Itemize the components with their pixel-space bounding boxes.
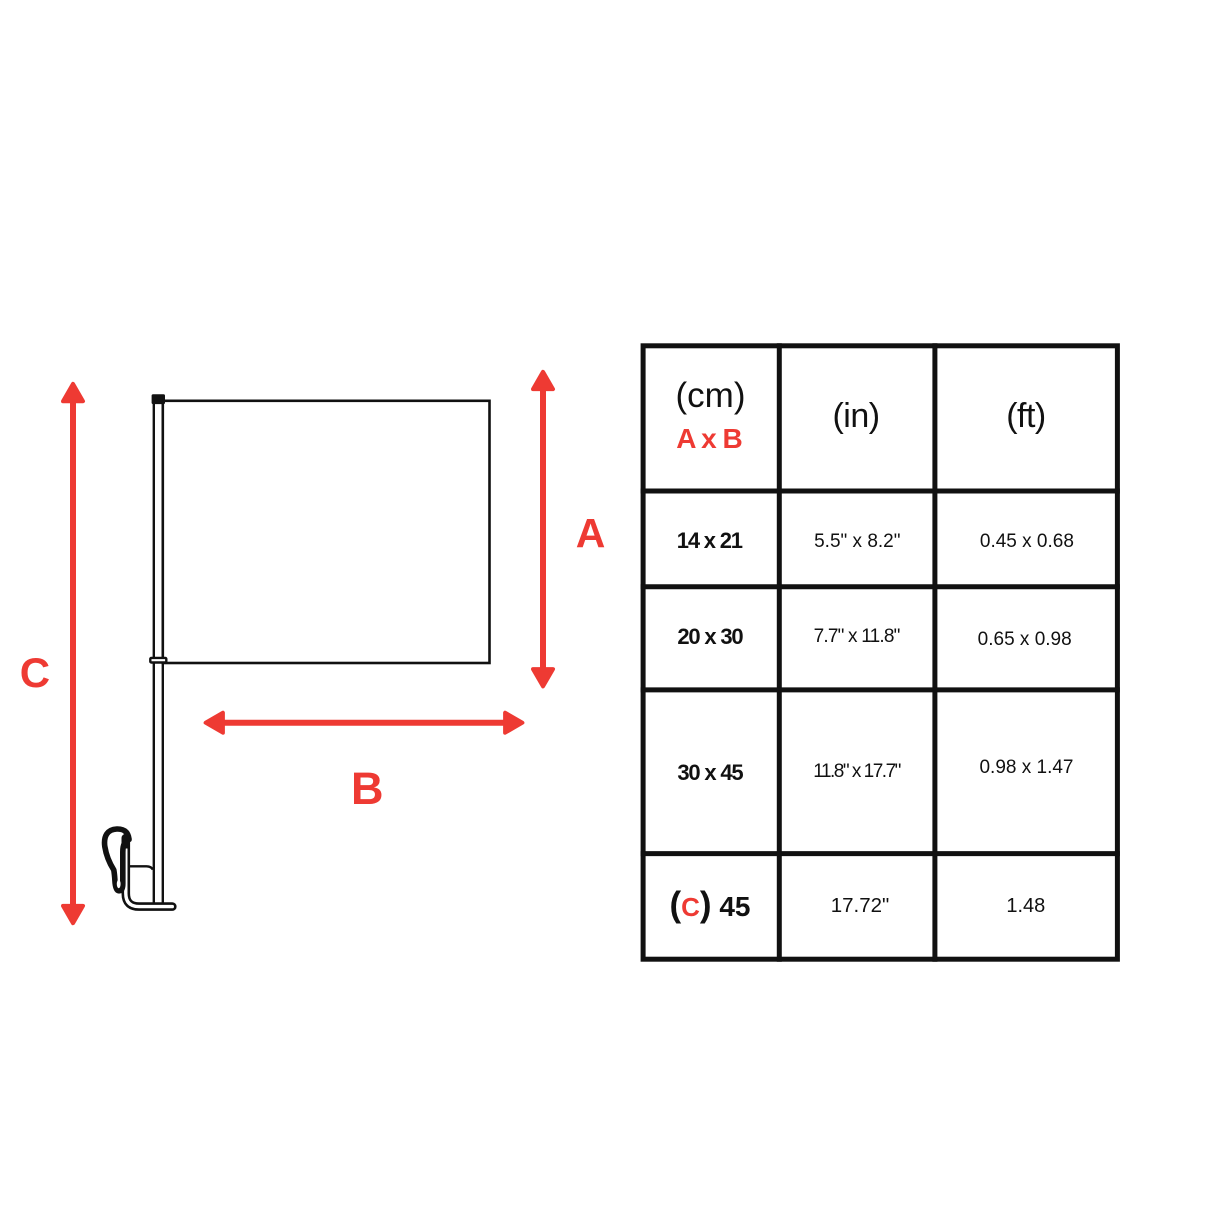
- svg-text:(ft): (ft): [1006, 397, 1046, 435]
- svg-text:11.8" x 17.7": 11.8" x 17.7": [813, 761, 900, 782]
- svg-text:(in): (in): [832, 397, 879, 435]
- svg-text:1.48: 1.48: [1006, 895, 1045, 917]
- svg-text:14 x 21: 14 x 21: [677, 528, 743, 553]
- svg-text:0.98 x 1.47: 0.98 x 1.47: [979, 757, 1073, 778]
- svg-text:30 x 45: 30 x 45: [677, 760, 743, 785]
- svg-text:B: B: [351, 763, 384, 814]
- svg-text:A: A: [576, 510, 606, 556]
- svg-text:C: C: [20, 649, 50, 696]
- svg-text:20 x 30: 20 x 30: [677, 624, 743, 649]
- svg-text:7.7" x 11.8": 7.7" x 11.8": [814, 626, 900, 647]
- svg-text:A x B: A x B: [676, 423, 742, 454]
- svg-text:(cm): (cm): [676, 376, 746, 415]
- svg-text:5.5" x 8.2": 5.5" x 8.2": [814, 531, 900, 552]
- svg-text:0.65 x 0.98: 0.65 x 0.98: [978, 629, 1072, 650]
- svg-text:0.45 x 0.68: 0.45 x 0.68: [980, 531, 1074, 552]
- svg-text:17.72": 17.72": [831, 894, 890, 917]
